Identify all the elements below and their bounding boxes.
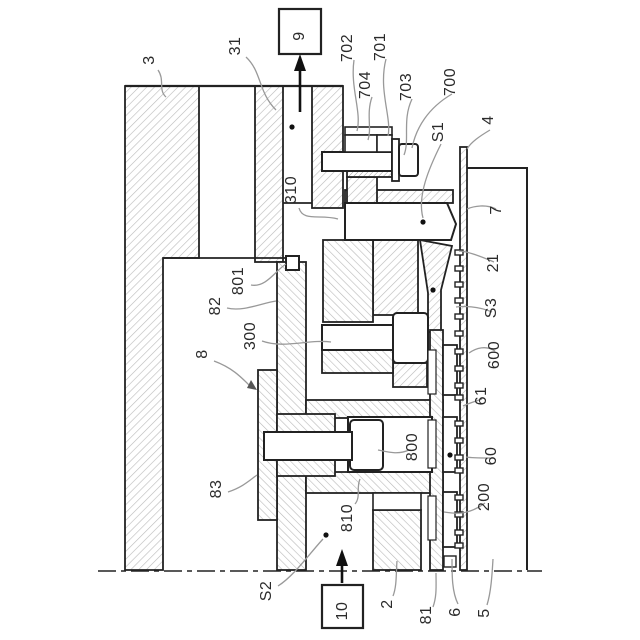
patent-figure: 3 31 9 702 701 704 703 700 S1 4 7 310 80…	[0, 0, 640, 640]
label-6: 6	[447, 607, 464, 616]
part-31-wall-right	[312, 86, 343, 208]
dot-chamber-310	[289, 124, 294, 129]
tooth-icon	[455, 530, 463, 535]
label-8: 8	[194, 349, 211, 358]
arrow-9-head-icon	[294, 54, 306, 71]
label-5: 5	[476, 608, 493, 617]
label-s2: S2	[258, 581, 275, 602]
stack-end-stop	[444, 556, 456, 567]
dot-60	[447, 452, 452, 457]
piston-800-head	[350, 420, 383, 470]
piston-800-rod	[264, 432, 352, 460]
leader-82	[227, 301, 276, 309]
tooth-icon	[455, 455, 463, 460]
carrier-slot-3	[428, 496, 436, 540]
label-801: 801	[230, 267, 247, 295]
part-31-wall-left	[255, 86, 283, 262]
piston-300-guide	[393, 363, 427, 387]
figure-canvas: 3 31 9 702 701 704 703 700 S1 4 7 310 80…	[0, 0, 640, 640]
tooth-icon	[455, 366, 463, 371]
tooth-icon	[455, 383, 463, 388]
label-810: 810	[339, 504, 356, 532]
label-600: 600	[486, 341, 503, 369]
part-703-flange	[392, 139, 399, 181]
bolt-700-head	[399, 144, 418, 176]
tooth-icon	[455, 495, 463, 500]
tooth-icon	[455, 421, 463, 426]
leader-310	[299, 208, 338, 219]
dot-s2	[323, 532, 328, 537]
tooth-icon	[455, 468, 463, 473]
tooth-icon	[455, 282, 463, 287]
label-700: 700	[442, 68, 459, 96]
label-9: 9	[291, 31, 308, 40]
label-83: 83	[208, 480, 225, 499]
label-4: 4	[480, 115, 497, 124]
piston-300-rod	[322, 325, 393, 350]
dot-s1	[420, 219, 425, 224]
tooth-icon	[455, 266, 463, 271]
part-3-housing-block	[125, 86, 199, 570]
tooth-icon	[455, 298, 463, 303]
body-block-center	[323, 240, 373, 322]
label-21: 21	[485, 254, 502, 273]
carrier-slot-2	[428, 420, 436, 468]
label-200: 200	[476, 483, 493, 511]
label-3: 3	[141, 55, 158, 64]
label-702: 702	[339, 34, 356, 62]
part-701-plate	[377, 135, 392, 152]
label-800: 800	[404, 433, 421, 461]
label-61: 61	[473, 387, 490, 406]
part-2-top-band	[373, 493, 421, 510]
label-10: 10	[334, 602, 351, 621]
tooth-icon	[455, 395, 463, 400]
leader-8	[214, 361, 251, 387]
label-s3: S3	[483, 298, 500, 319]
part-801-seal	[286, 256, 299, 270]
arrow-10-head-icon	[336, 549, 348, 566]
tooth-icon	[455, 314, 463, 319]
body-wall-right	[373, 240, 418, 315]
label-704: 704	[357, 71, 374, 99]
tooth-icon	[455, 349, 463, 354]
label-701: 701	[372, 33, 389, 61]
leader-81	[433, 573, 436, 607]
part-704-plate	[345, 135, 377, 152]
rod-guide-top	[277, 414, 335, 432]
s1-plate	[345, 203, 456, 240]
leader-83	[228, 475, 257, 492]
label-310: 310	[283, 176, 300, 204]
bolt-700-shaft	[322, 152, 392, 171]
tooth-icon	[455, 438, 463, 443]
label-31: 31	[227, 37, 244, 56]
leader-4	[467, 130, 490, 149]
label-81: 81	[418, 606, 435, 625]
tooth-icon	[455, 331, 463, 336]
label-7: 7	[488, 205, 505, 214]
guide-under-piston-300	[322, 350, 393, 373]
label-300: 300	[242, 322, 259, 350]
label-s1: S1	[430, 122, 447, 143]
label-60: 60	[483, 447, 500, 466]
label-703: 703	[398, 73, 415, 101]
part-4-drum-plate	[460, 147, 467, 570]
carrier-slot-1	[428, 350, 436, 394]
label-82: 82	[207, 297, 224, 316]
tooth-icon	[455, 543, 463, 548]
label-2: 2	[379, 599, 396, 608]
leader-8-arrowhead-icon	[247, 380, 257, 390]
leader-701	[383, 59, 388, 136]
part-702-plate	[345, 127, 392, 135]
rod-guide-bottom	[277, 460, 335, 476]
leader-5	[487, 559, 493, 605]
piston-300-head	[393, 313, 428, 363]
dot-s3	[430, 287, 435, 292]
